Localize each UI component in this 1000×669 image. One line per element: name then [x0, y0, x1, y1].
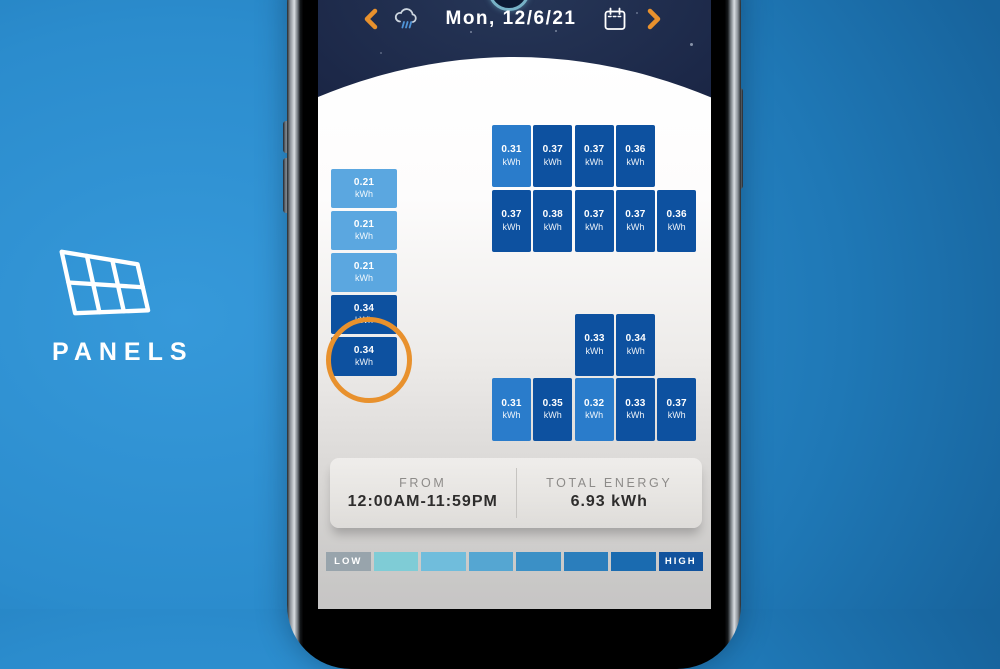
panel-unit: kWh	[544, 410, 562, 421]
panel-unit: kWh	[585, 222, 603, 233]
solar-panel[interactable]: 0.33kWh	[575, 314, 614, 376]
panel-unit: kWh	[544, 157, 562, 168]
solar-panel[interactable]: 0.37kWh	[657, 378, 696, 441]
panel-value: 0.33	[625, 398, 645, 411]
solar-panel[interactable]: 0.35kWh	[533, 378, 572, 441]
scale-low-label: LOW	[334, 556, 362, 567]
panel-value: 0.37	[584, 144, 604, 157]
scale-segment	[469, 552, 514, 571]
scale-segment	[516, 552, 561, 571]
phone-screen: Mon, 12/6/21	[318, 0, 711, 609]
highlight-ring	[326, 317, 412, 403]
intensity-scale: LOWHIGH	[326, 552, 703, 571]
panel-unit: kWh	[585, 410, 603, 421]
panel-unit: kWh	[503, 410, 521, 421]
panel-unit: kWh	[355, 273, 373, 284]
panel-unit: kWh	[503, 157, 521, 168]
total-energy-label: TOTAL ENERGY	[546, 476, 672, 490]
panel-value: 0.36	[625, 144, 645, 157]
panel-value: 0.37	[667, 398, 687, 411]
panel-unit: kWh	[585, 157, 603, 168]
solar-panel[interactable]: 0.21kWh	[331, 169, 397, 208]
panel-value: 0.34	[354, 303, 374, 316]
from-label: FROM	[399, 476, 446, 490]
from-value: 12:00AM-11:59PM	[348, 493, 498, 511]
panel-unit: kWh	[626, 410, 644, 421]
summary-from: FROM 12:00AM-11:59PM	[330, 458, 516, 528]
panel-unit: kWh	[586, 346, 604, 357]
solar-panel[interactable]: 0.21kWh	[331, 253, 397, 292]
solar-panel[interactable]: 0.33kWh	[616, 378, 655, 441]
summary-total: TOTAL ENERGY 6.93 kWh	[516, 468, 703, 518]
solar-panel[interactable]: 0.36kWh	[657, 190, 696, 252]
scale-segment	[564, 552, 609, 571]
scale-segment	[421, 552, 466, 571]
scale-segment	[374, 552, 419, 571]
solar-panel[interactable]: 0.31kWh	[492, 378, 531, 441]
panel-unit: kWh	[627, 346, 645, 357]
panel-value: 0.21	[354, 219, 374, 232]
panel-value: 0.37	[584, 209, 604, 222]
solar-panel[interactable]: 0.32kWh	[575, 378, 614, 441]
solar-panel[interactable]: 0.37kWh	[616, 190, 655, 252]
solar-panel[interactable]: 0.37kWh	[533, 125, 572, 187]
panel-value: 0.36	[667, 209, 687, 222]
panel-value: 0.31	[501, 144, 521, 157]
scale-segment: LOW	[326, 552, 371, 571]
summary-card: FROM 12:00AM-11:59PM TOTAL ENERGY 6.93 k…	[330, 458, 702, 528]
panel-value: 0.38	[543, 209, 563, 222]
panel-unit: kWh	[355, 189, 373, 200]
solar-panel[interactable]: 0.36kWh	[616, 125, 655, 187]
solar-panel[interactable]: 0.34kWh	[616, 314, 655, 376]
solar-panel[interactable]: 0.37kWh	[575, 125, 614, 187]
panel-value: 0.34	[626, 333, 646, 346]
panel-value: 0.31	[501, 398, 521, 411]
page-title: PANELS	[52, 338, 194, 367]
panel-value: 0.33	[584, 333, 604, 346]
panel-value: 0.37	[625, 209, 645, 222]
scale-high-label: HIGH	[665, 556, 697, 567]
phone-frame: Mon, 12/6/21	[287, 0, 741, 669]
panel-unit: kWh	[668, 410, 686, 421]
panel-unit: kWh	[544, 222, 562, 233]
solar-panel[interactable]: 0.21kWh	[331, 211, 397, 250]
panel-unit: kWh	[626, 222, 644, 233]
scale-segment: HIGH	[659, 552, 704, 571]
panel-value: 0.32	[584, 398, 604, 411]
panel-value: 0.35	[543, 398, 563, 411]
panel-value: 0.21	[354, 261, 374, 274]
scale-segment	[611, 552, 656, 571]
solar-panel[interactable]: 0.37kWh	[575, 190, 614, 252]
total-energy-value: 6.93 kWh	[571, 493, 648, 511]
panel-unit: kWh	[668, 222, 686, 233]
solar-panel[interactable]: 0.31kWh	[492, 125, 531, 187]
panel-unit: kWh	[503, 222, 521, 233]
panel-value: 0.21	[354, 177, 374, 190]
solar-panel[interactable]: 0.37kWh	[492, 190, 531, 252]
panel-value: 0.37	[543, 144, 563, 157]
panel-unit: kWh	[626, 157, 644, 168]
panel-unit: kWh	[355, 231, 373, 242]
panel-value: 0.37	[501, 209, 521, 222]
solar-panel-icon	[53, 246, 151, 318]
solar-panel[interactable]: 0.38kWh	[533, 190, 572, 252]
